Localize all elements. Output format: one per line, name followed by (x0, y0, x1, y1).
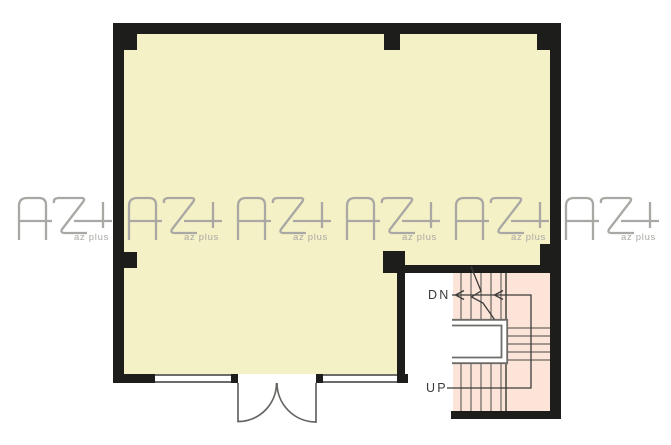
column-top-left (113, 23, 137, 50)
stairs-up-label: UP (426, 381, 448, 395)
wall-left (113, 23, 124, 383)
watermark-subtext: az plus (402, 232, 437, 243)
door-jamb-left (231, 374, 238, 383)
door-leaf-left (238, 383, 277, 422)
column-left-middle (113, 252, 137, 268)
window-front-left (155, 374, 231, 383)
door-leaf-right (277, 383, 316, 422)
column-top-right (537, 23, 561, 50)
watermark-subtext: az plus (74, 232, 109, 243)
watermark-subtext: az plus (293, 232, 328, 243)
column-right-middle (540, 244, 561, 273)
watermark-subtext: az plus (511, 232, 546, 243)
stair-core-island (452, 319, 508, 364)
watermark-subtext: az plus (184, 232, 219, 243)
stairs-down-label: DN (428, 288, 450, 302)
column-top-middle (384, 23, 400, 50)
floorplan-drawing: az plus az plus az plus az plus az plus … (0, 0, 671, 445)
wall-stair-top (397, 265, 561, 273)
column-stair-corner (383, 251, 405, 273)
wall-bottom-left-segment (113, 374, 155, 383)
double-door (238, 383, 316, 422)
door-jamb-right (316, 374, 323, 383)
watermark-az-plus: az plus (566, 198, 659, 243)
watermark-subtext: az plus (621, 232, 656, 243)
wall-top (113, 23, 561, 34)
floorplan-canvas: az plus az plus az plus az plus az plus … (0, 0, 671, 445)
wall-stair-bottom (451, 411, 561, 419)
wall-right (550, 23, 561, 419)
watermark-az-plus: az plus (19, 198, 112, 243)
wall-stair-left (397, 265, 405, 383)
window-front-right (323, 374, 397, 383)
